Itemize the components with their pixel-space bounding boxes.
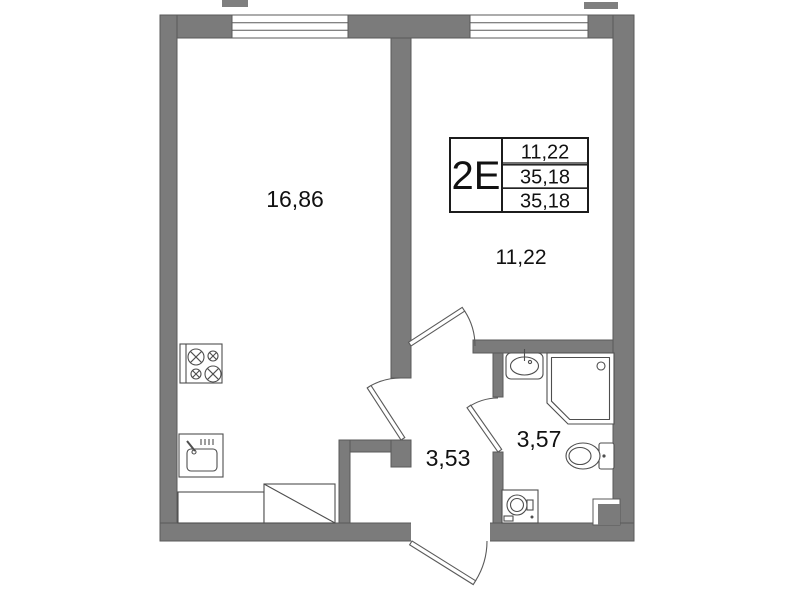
- counter: [178, 492, 264, 523]
- unit-type-label: 2Е: [452, 154, 501, 198]
- stove-icon: [180, 344, 222, 383]
- wardrobe: [264, 484, 335, 523]
- wall-bottom: [160, 523, 634, 541]
- door-bedroom: [409, 307, 475, 346]
- bathroom-area-label: 3,57: [517, 426, 562, 452]
- window-living: [232, 15, 348, 38]
- wall-niche-block: [391, 440, 411, 467]
- floorplan-drawing: 2Е 11,22 35,18 35,18 16,86 11,22 3,53 3,…: [0, 0, 799, 600]
- vent-shaft: [593, 499, 620, 525]
- wall-bathroom-left-upper: [493, 353, 503, 397]
- wall-living-bedroom: [391, 38, 411, 378]
- wall-right: [613, 15, 634, 541]
- toilet-icon: [566, 443, 614, 469]
- shower-icon: [547, 353, 614, 424]
- top-ticks: [222, 0, 618, 9]
- door-leaf: [467, 405, 502, 452]
- table-value-3: 35,18: [520, 191, 570, 213]
- bathroom-sink-icon: [506, 349, 543, 379]
- floorplan-canvas: 2Е 11,22 35,18 35,18 16,86 11,22 3,53 3,…: [0, 0, 799, 600]
- table-value-2: 35,18: [520, 167, 570, 189]
- washing-machine-icon: [502, 490, 538, 523]
- door-leaf: [409, 307, 465, 346]
- table-value-1: 11,22: [521, 142, 570, 164]
- hallway-area-label: 3,53: [426, 445, 471, 471]
- bedroom-area-label: 11,22: [496, 246, 547, 269]
- door-arc: [476, 541, 487, 581]
- tick-left: [222, 0, 248, 7]
- tick-right: [584, 2, 618, 9]
- door-bathroom: [467, 398, 502, 452]
- door-leaf: [367, 386, 405, 440]
- unit-info-table: 2Е 11,22 35,18 35,18: [450, 138, 588, 213]
- living-room-area-label: 16,86: [266, 186, 324, 212]
- window-bedroom: [470, 15, 588, 38]
- wall-niche-left: [339, 440, 350, 523]
- door-leaf: [410, 541, 476, 585]
- door-living: [367, 378, 405, 440]
- wall-left: [160, 15, 177, 541]
- kitchen-fixtures: [178, 344, 335, 523]
- wall-bedroom-bottom: [473, 340, 613, 353]
- door-entrance: [410, 541, 487, 585]
- entrance-opening: [411, 522, 490, 542]
- kitchen-sink-icon: [179, 434, 223, 477]
